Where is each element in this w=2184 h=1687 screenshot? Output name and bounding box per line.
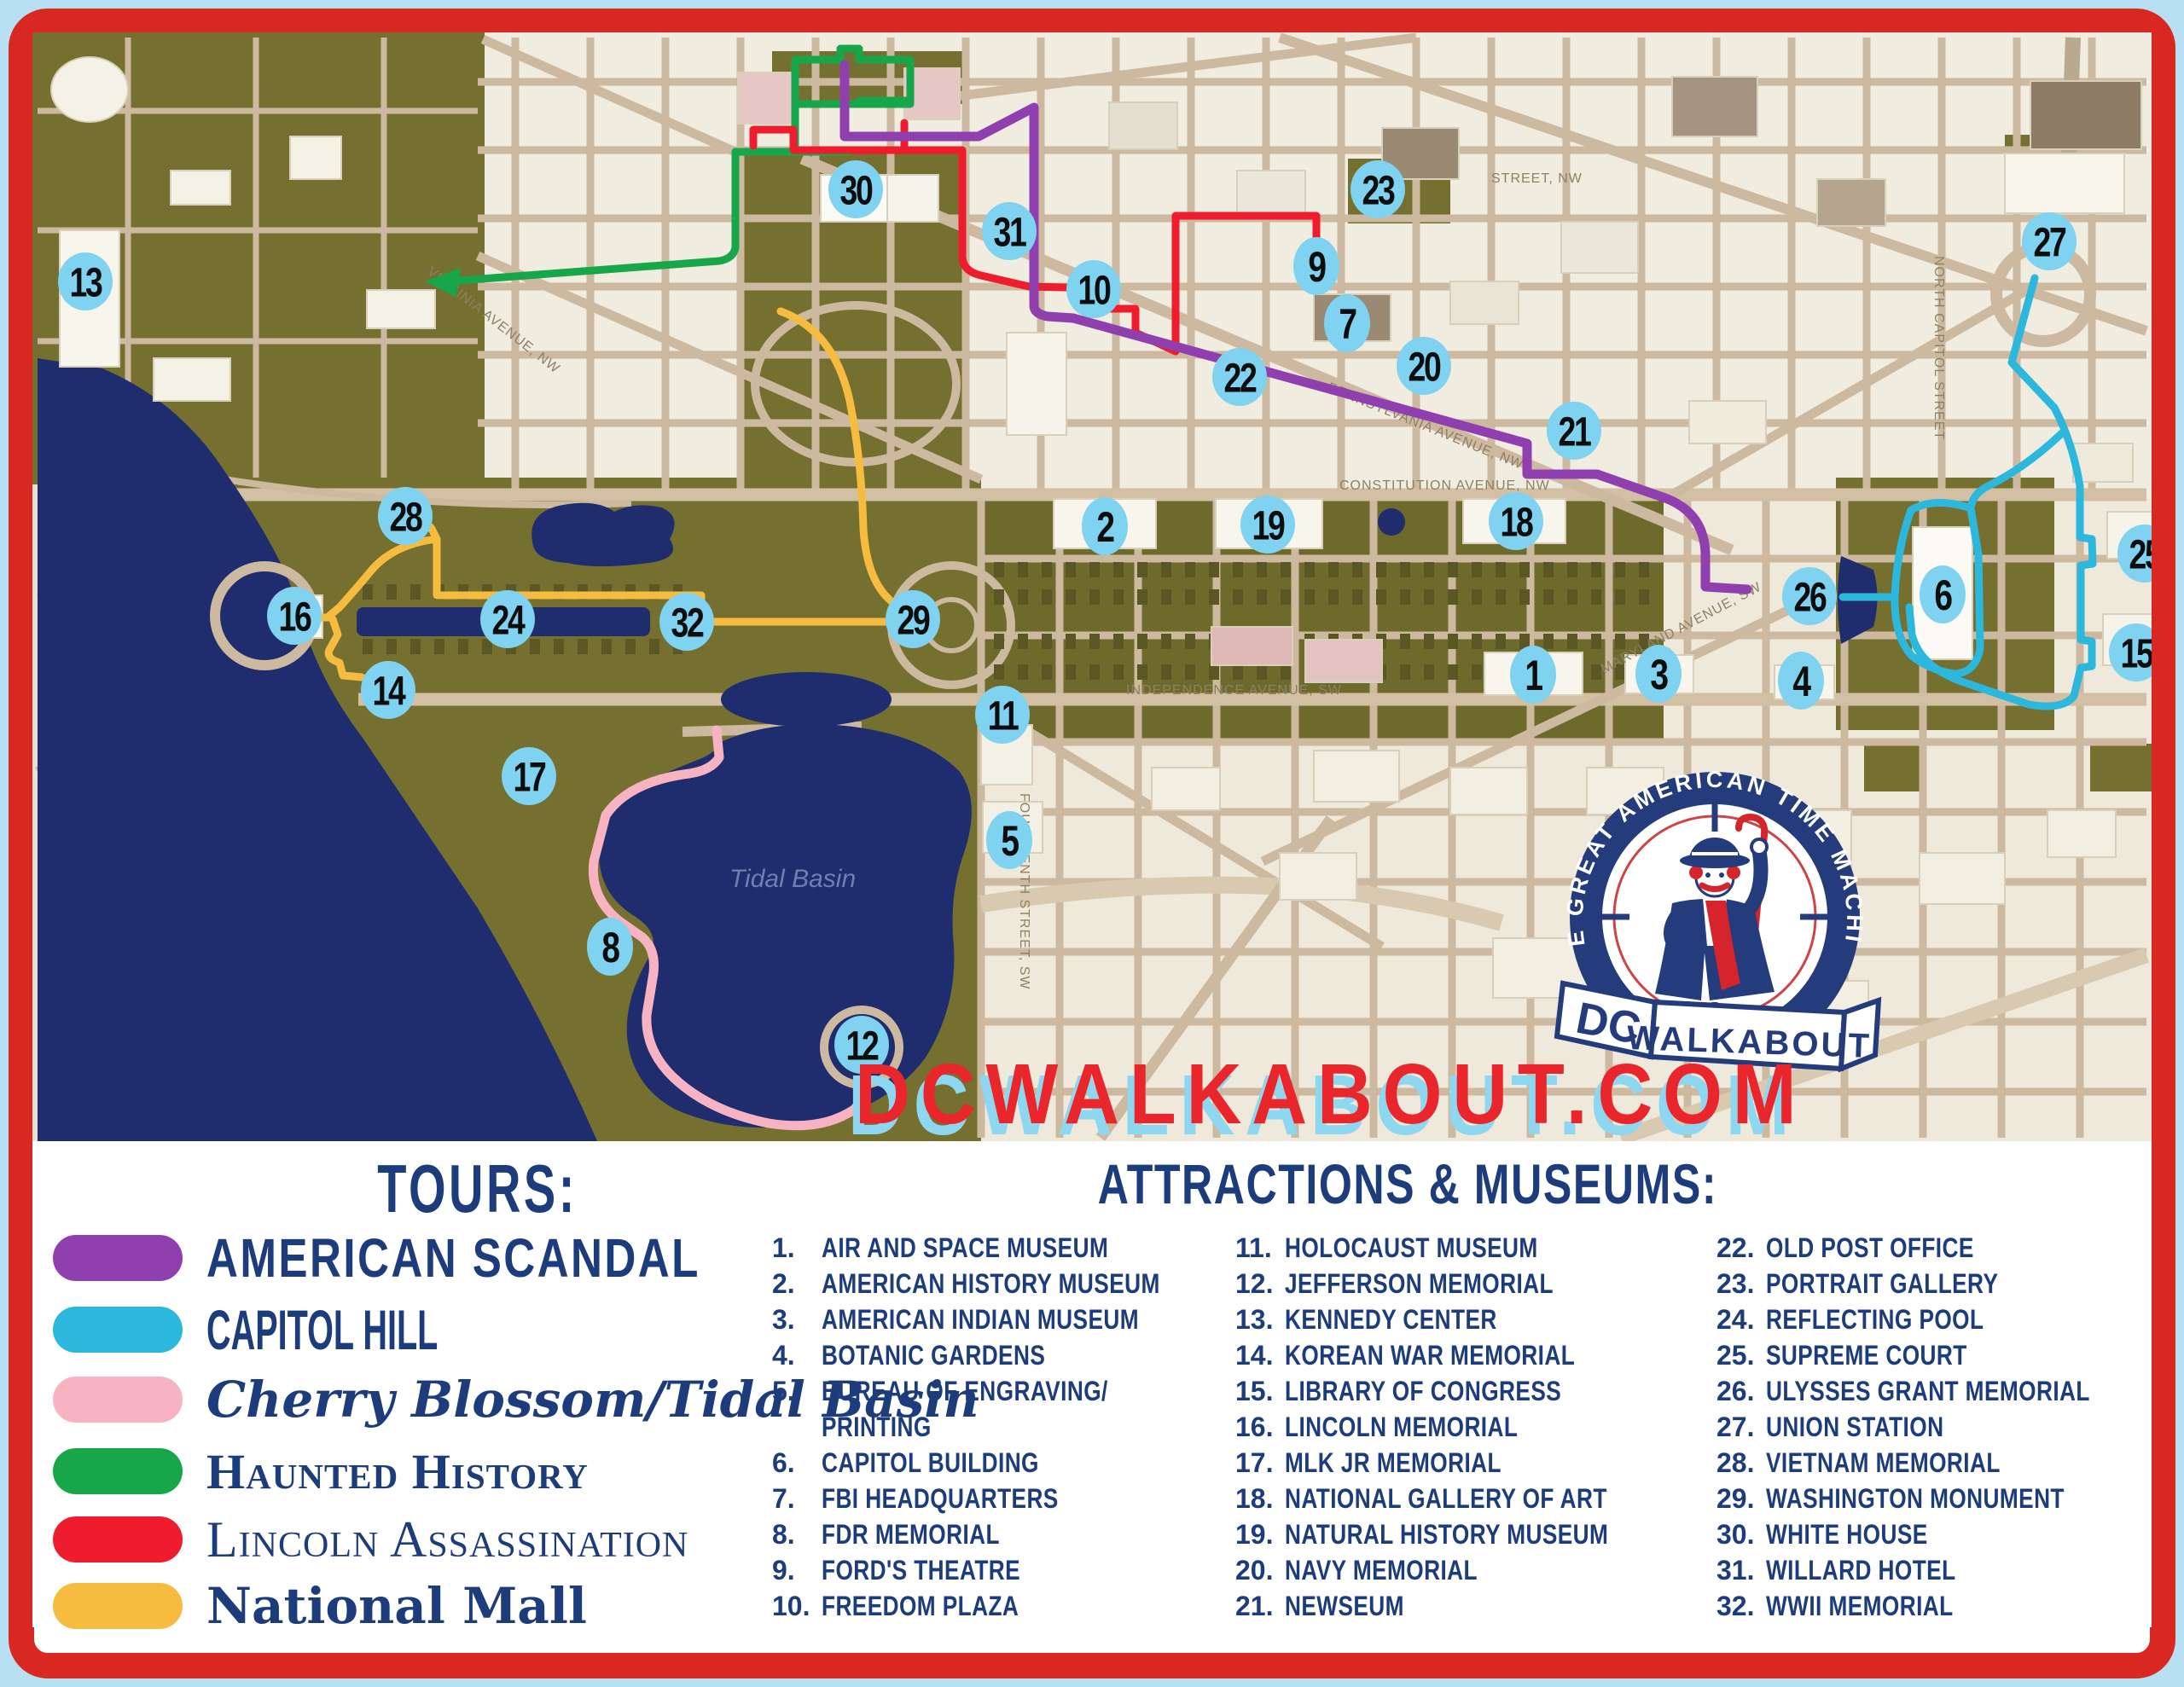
attraction-name: MLK JR MEMORIAL [1285, 1445, 1501, 1481]
tour-legend-row-haunted-history: Haunted History [53, 1448, 589, 1494]
map-marker-10: 10 [1066, 260, 1121, 318]
attraction-item: 14.KOREAN WAR MEMORIAL [1235, 1337, 1680, 1373]
map-marker-4: 4 [1778, 652, 1824, 710]
attraction-item: 10.FREEDOM PLAZA [772, 1588, 1234, 1624]
tour-legend-row-national-mall: National Mall [53, 1583, 587, 1629]
attraction-name: UNION STATION [1766, 1409, 1943, 1445]
marker-number: 23 [1362, 168, 1395, 214]
attraction-name: BUREAU OF ENGRAVING/ [822, 1373, 1108, 1409]
attraction-number: 31. [1716, 1552, 1766, 1588]
map-marker-19: 19 [1240, 496, 1295, 554]
marker-number: 2 [1096, 502, 1114, 551]
attraction-number: 5. [772, 1373, 822, 1409]
marker-number: 17 [514, 755, 546, 801]
attractions-column-1: 1.AIR AND SPACE MUSEUM2.AMERICAN HISTORY… [772, 1230, 1234, 1624]
attraction-name: REFLECTING POOL [1766, 1301, 1984, 1337]
marker-number: 20 [1409, 345, 1441, 391]
marker-number: 6 [1934, 571, 1952, 619]
attraction-item: 25.SUPREME COURT [1716, 1337, 2161, 1373]
city-map: Tidal Basin CONSTITUTION AVENUE, NWINDEP… [32, 32, 2152, 1141]
attraction-name: BOTANIC GARDENS [822, 1337, 1045, 1373]
attraction-number: 12. [1235, 1266, 1285, 1301]
attraction-number: 20. [1235, 1552, 1285, 1588]
attraction-item: 28.VIETNAM MEMORIAL [1716, 1445, 2161, 1481]
map-marker-20: 20 [1397, 337, 1451, 395]
tour-legend-row-lincoln-assassination: Lincoln Assassination [53, 1516, 688, 1562]
tour-color-pill [53, 1235, 183, 1281]
marker-number: 8 [601, 923, 619, 971]
attractions-column-2: 11.HOLOCAUST MUSEUM12.JEFFERSON MEMORIAL… [1235, 1230, 1680, 1624]
attraction-item: 29.WASHINGTON MONUMENT [1716, 1481, 2161, 1516]
attraction-name: LIBRARY OF CONGRESS [1285, 1373, 1561, 1409]
website-url: DCWALKABOUT.COM [855, 1046, 1806, 1144]
tour-color-pill [53, 1307, 183, 1353]
tour-label: National Mall [206, 1577, 587, 1635]
attraction-item: 32.WWII MEMORIAL [1716, 1588, 2161, 1624]
attraction-item: 3.AMERICAN INDIAN MUSEUM [772, 1301, 1234, 1337]
attraction-name: AIR AND SPACE MUSEUM [822, 1230, 1108, 1266]
attraction-item: 11.HOLOCAUST MUSEUM [1235, 1230, 1680, 1266]
attraction-item-wrap: PRINTING [772, 1409, 1234, 1445]
attraction-name: NEWSEUM [1285, 1588, 1404, 1624]
attraction-item: 19.NATURAL HISTORY MUSEUM [1235, 1516, 1680, 1552]
map-marker-17: 17 [502, 747, 556, 805]
marker-number: 21 [1559, 409, 1591, 455]
map-marker-24: 24 [480, 590, 535, 648]
attraction-number: 21. [1235, 1588, 1285, 1624]
attraction-name: VIETNAM MEMORIAL [1766, 1445, 2001, 1481]
attraction-name: NATURAL HISTORY MUSEUM [1285, 1516, 1608, 1552]
attraction-item: 24.REFLECTING POOL [1716, 1301, 2161, 1337]
marker-number: 18 [1501, 500, 1533, 546]
smithsonian-castle [1211, 627, 1292, 665]
marker-number: 30 [840, 168, 873, 214]
attraction-name: JEFFERSON MEMORIAL [1285, 1266, 1554, 1301]
marker-number: 27 [2034, 220, 2066, 266]
attraction-item: 26.ULYSSES GRANT MEMORIAL [1716, 1373, 2161, 1409]
attraction-number: 18. [1235, 1481, 1285, 1516]
attraction-number: 24. [1716, 1301, 1766, 1337]
attraction-number: 25. [1716, 1337, 1766, 1373]
attraction-name: OLD POST OFFICE [1766, 1230, 1974, 1266]
attraction-name: SUPREME COURT [1766, 1337, 1967, 1373]
tidal-basin-label: Tidal Basin [729, 865, 856, 893]
tour-legend-row-capitol-hill: CAPITOL HILL [53, 1307, 592, 1353]
map-marker-2: 2 [1082, 497, 1128, 555]
tour-label: CAPITOL HILL [206, 1297, 438, 1362]
attraction-item: 22.OLD POST OFFICE [1716, 1230, 2161, 1266]
attraction-item: 6.CAPITOL BUILDING [772, 1445, 1234, 1481]
map-marker-6: 6 [1920, 565, 1966, 623]
attraction-item: 15.LIBRARY OF CONGRESS [1235, 1373, 1680, 1409]
map-marker-3: 3 [1635, 645, 1682, 703]
marker-number: 9 [1308, 242, 1326, 291]
attraction-item: 20.NAVY MEMORIAL [1235, 1552, 1680, 1588]
attraction-item: 1.AIR AND SPACE MUSEUM [772, 1230, 1234, 1266]
attraction-name: CAPITOL BUILDING [822, 1445, 1039, 1481]
map-marker-28: 28 [378, 487, 433, 545]
attraction-number: 4. [772, 1337, 822, 1373]
tour-color-pill [53, 1448, 183, 1494]
attraction-name: FORD'S THEATRE [822, 1552, 1020, 1588]
tour-color-pill [53, 1377, 183, 1423]
attraction-name: PRINTING [822, 1409, 932, 1445]
marker-number: 29 [897, 598, 930, 644]
marker-number: 11 [988, 693, 1019, 739]
attraction-name: NATIONAL GALLERY OF ART [1285, 1481, 1607, 1516]
attraction-name: FBI HEADQUARTERS [822, 1481, 1059, 1516]
attraction-number: 26. [1716, 1373, 1766, 1409]
map-marker-13: 13 [58, 252, 113, 310]
attractions-title: ATTRACTIONS & MUSEUMS: [768, 1151, 2047, 1216]
street-label: CONSTITUTION AVENUE, NW [1339, 478, 1550, 493]
attraction-name: LINCOLN MEMORIAL [1285, 1409, 1518, 1445]
tour-label: Lincoln Assassination [206, 1510, 688, 1569]
marker-number: 26 [1794, 575, 1827, 621]
attraction-number: 7. [772, 1481, 822, 1516]
attraction-number: 29. [1716, 1481, 1766, 1516]
attraction-number: 19. [1235, 1516, 1285, 1552]
fountain-pond [1378, 508, 1405, 536]
attraction-number: 1. [772, 1230, 822, 1266]
attraction-item: 7.FBI HEADQUARTERS [772, 1481, 1234, 1516]
attraction-number: 2. [772, 1266, 822, 1301]
marker-number: 14 [373, 669, 406, 715]
attractions-column-3: 22.OLD POST OFFICE23.PORTRAIT GALLERY24.… [1716, 1230, 2161, 1624]
attraction-item: 31.WILLARD HOTEL [1716, 1552, 2161, 1588]
marker-number: 3 [1650, 650, 1668, 699]
marker-number: 7 [1339, 299, 1356, 348]
attraction-item: 8.FDR MEMORIAL [772, 1516, 1234, 1552]
attraction-name: ULYSSES GRANT MEMORIAL [1766, 1373, 2090, 1409]
attraction-name: FREEDOM PLAZA [822, 1588, 1019, 1624]
attraction-number: 9. [772, 1552, 822, 1588]
attraction-name: NAVY MEMORIAL [1285, 1552, 1478, 1588]
map-marker-27: 27 [2022, 212, 2077, 270]
map-marker-30: 30 [828, 160, 883, 218]
attraction-name: AMERICAN HISTORY MUSEUM [822, 1266, 1160, 1301]
marker-number: 4 [1792, 657, 1811, 705]
street-label: INDEPENDENCE AVENUE, SW [1126, 683, 1342, 698]
tour-legend-row-american-scandal: AMERICAN SCANDAL [53, 1235, 824, 1281]
marker-number: 19 [1252, 503, 1285, 549]
map-marker-22: 22 [1212, 348, 1267, 406]
attraction-number: 6. [772, 1445, 822, 1481]
map-marker-16: 16 [267, 587, 322, 645]
marker-number: 10 [1078, 268, 1111, 314]
attraction-item: 27.UNION STATION [1716, 1409, 2161, 1445]
map-marker-31: 31 [982, 202, 1037, 260]
marker-number: 25 [2129, 532, 2152, 578]
map-marker-32: 32 [659, 593, 714, 651]
attraction-name: WILLARD HOTEL [1766, 1552, 1956, 1588]
attraction-number: 30. [1716, 1516, 1766, 1552]
dc-walkabout-tour-map: { "page": { "website": "DCWALKABOUT.COM"… [0, 0, 2184, 1687]
union-station-building [2005, 154, 2124, 213]
attraction-number: 17. [1235, 1445, 1285, 1481]
map-marker-1: 1 [1510, 646, 1556, 704]
attraction-item: 12.JEFFERSON MEMORIAL [1235, 1266, 1680, 1301]
attraction-name: KENNEDY CENTER [1285, 1301, 1497, 1337]
tour-color-pill [53, 1583, 183, 1629]
attraction-name: HOLOCAUST MUSEUM [1285, 1230, 1538, 1266]
map-marker-18: 18 [1489, 492, 1543, 550]
marker-number: 16 [279, 594, 311, 641]
attraction-item: 4.BOTANIC GARDENS [772, 1337, 1234, 1373]
map-marker-11: 11 [975, 686, 1030, 744]
tours-title: TOURS: [136, 1150, 819, 1228]
tours-title-text: TOURS: [378, 1150, 578, 1228]
street-label: STREET, NW [1491, 171, 1583, 186]
attraction-item: 16.LINCOLN MEMORIAL [1235, 1409, 1680, 1445]
attraction-item: 9.FORD'S THEATRE [772, 1552, 1234, 1588]
attraction-number: 22. [1716, 1230, 1766, 1266]
map-marker-14: 14 [361, 661, 415, 719]
marker-number: 31 [994, 210, 1026, 256]
attraction-name: WHITE HOUSE [1766, 1516, 1928, 1552]
marker-number: 22 [1224, 356, 1257, 402]
attraction-name: FDR MEMORIAL [822, 1516, 1000, 1552]
attraction-number: 15. [1235, 1373, 1285, 1409]
map-marker-29: 29 [886, 590, 940, 648]
map-marker-8: 8 [587, 918, 633, 976]
map-marker-5: 5 [986, 811, 1032, 869]
attraction-number: 13. [1235, 1301, 1285, 1337]
attraction-name: WASHINGTON MONUMENT [1766, 1481, 2065, 1516]
attraction-name: WWII MEMORIAL [1766, 1588, 1954, 1624]
attraction-number: 28. [1716, 1445, 1766, 1481]
map-marker-7: 7 [1324, 294, 1370, 352]
marker-number: 13 [70, 260, 102, 306]
attraction-item: 13.KENNEDY CENTER [1235, 1301, 1680, 1337]
attraction-item: 17.MLK JR MEMORIAL [1235, 1445, 1680, 1481]
attraction-number: 14. [1235, 1337, 1285, 1373]
attraction-item: 30.WHITE HOUSE [1716, 1516, 2161, 1552]
tour-color-pill [53, 1516, 183, 1562]
marker-number: 28 [390, 495, 422, 541]
attraction-name: KOREAN WAR MEMORIAL [1285, 1337, 1575, 1373]
map-marker-21: 21 [1547, 402, 1601, 460]
attraction-number: 16. [1235, 1409, 1285, 1445]
marker-number: 32 [671, 600, 704, 646]
attraction-name: PORTRAIT GALLERY [1766, 1266, 1998, 1301]
street-label: NORTH CAPITOL STREET [1931, 256, 1946, 440]
attraction-number: 27. [1716, 1409, 1766, 1445]
basin-inlet [721, 672, 892, 727]
map-marker-23: 23 [1350, 160, 1405, 218]
tour-label: Haunted History [206, 1443, 589, 1500]
attraction-item: 2.AMERICAN HISTORY MUSEUM [772, 1266, 1234, 1301]
map-marker-26: 26 [1782, 567, 1837, 625]
attraction-number: 23. [1716, 1266, 1766, 1301]
marker-number: 1 [1525, 651, 1542, 699]
attraction-number: 32. [1716, 1588, 1766, 1624]
attraction-number: 3. [772, 1301, 822, 1337]
marker-number: 5 [1001, 816, 1019, 865]
attraction-item: 23.PORTRAIT GALLERY [1716, 1266, 2161, 1301]
attractions-title-text: ATTRACTIONS & MUSEUMS: [1098, 1151, 1717, 1216]
attraction-number: 8. [772, 1516, 822, 1552]
attraction-name: AMERICAN INDIAN MUSEUM [822, 1301, 1139, 1337]
tour-label: AMERICAN SCANDAL [206, 1226, 700, 1290]
marker-number: 24 [492, 598, 526, 644]
constitution-gardens-pond [531, 503, 674, 566]
attraction-number: 11. [1235, 1230, 1285, 1266]
attraction-item: 5.BUREAU OF ENGRAVING/ [772, 1373, 1234, 1409]
attraction-item: 21.NEWSEUM [1235, 1588, 1680, 1624]
marker-number: 15 [2121, 631, 2152, 677]
attraction-number: 10. [772, 1588, 822, 1624]
attraction-item: 18.NATIONAL GALLERY OF ART [1235, 1481, 1680, 1516]
map-marker-9: 9 [1293, 237, 1339, 295]
